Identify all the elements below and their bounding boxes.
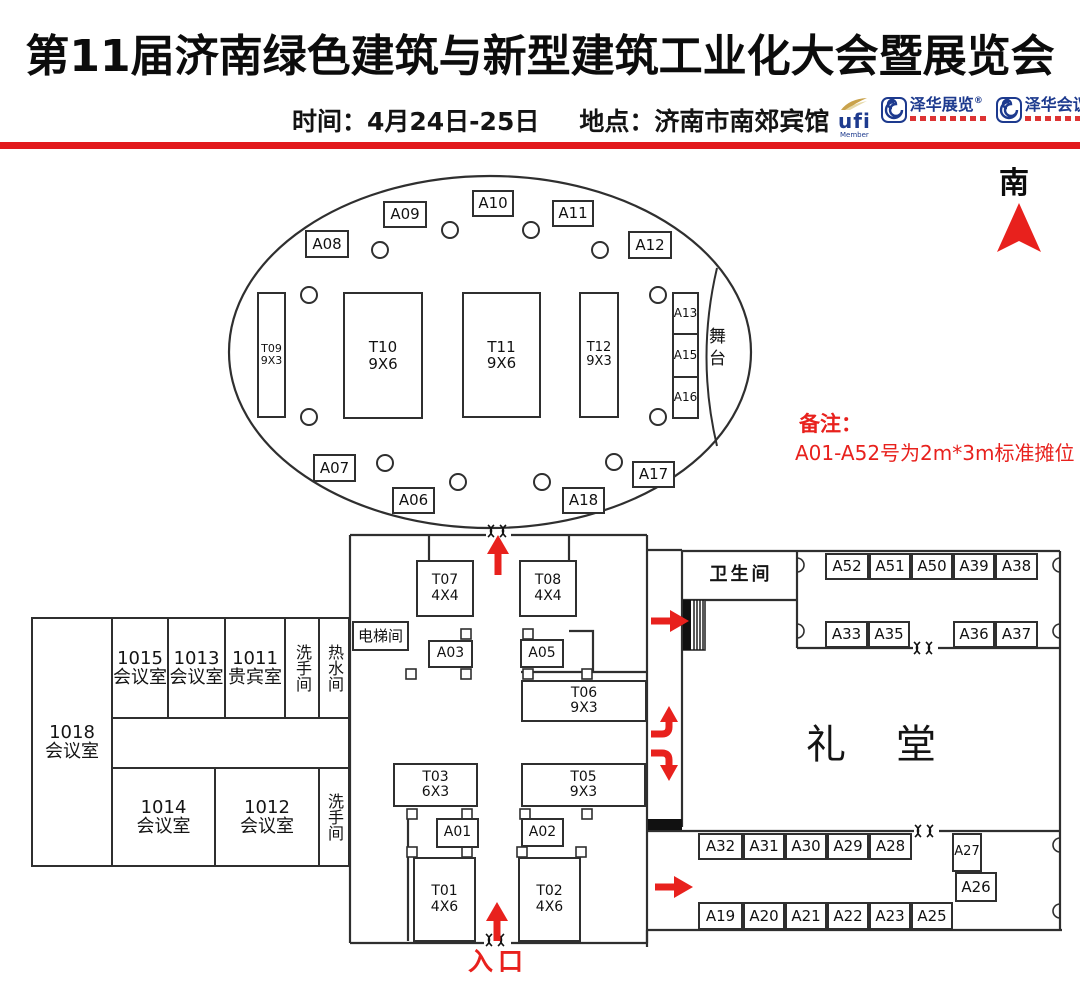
- organizer-logos: ufi Member 泽华展览® 泽华会议®: [838, 97, 1080, 139]
- page-title: 第11届济南绿色建筑与新型建筑工业化大会暨展览会: [0, 20, 1080, 84]
- room-hot-water: 热水间: [320, 619, 348, 717]
- floor-plan-page: 第11届济南绿色建筑与新型建筑工业化大会暨展览会 时间：4月24日-25日 地点…: [0, 0, 1080, 1007]
- booth-A20: A20: [743, 902, 785, 930]
- zehua-swirl-icon: [881, 97, 907, 123]
- ufi-logo: ufi Member: [838, 97, 871, 139]
- room-1018: 1018 会议室: [33, 619, 113, 865]
- booth-A22: A22: [827, 902, 869, 930]
- booth-A18: A18: [562, 487, 605, 514]
- entrance-arrow-icon: [486, 902, 508, 921]
- header-divider-rule: [0, 142, 1080, 149]
- booth-A35: A35: [868, 621, 910, 648]
- booth-T06: T06 9X3: [521, 680, 647, 722]
- booth-A06: A06: [392, 487, 435, 514]
- booth-A29: A29: [827, 833, 869, 860]
- booth-T05: T05 9X3: [521, 763, 646, 807]
- booth-A39: A39: [953, 553, 995, 580]
- booth-A02: A02: [521, 818, 564, 847]
- booth-A12: A12: [628, 231, 672, 259]
- left-wing-top-row: 1015 会议室 1013 会议室 1011 贵宾室 洗手间 热水间: [113, 619, 348, 719]
- room-elevator: 电梯间: [352, 621, 409, 651]
- booth-A27: A27: [952, 833, 982, 872]
- booth-A28: A28: [869, 833, 912, 860]
- booth-A17: A17: [632, 461, 675, 488]
- compass-south-label: 南: [999, 158, 1031, 202]
- booth-T10: T10 9X6: [343, 292, 423, 419]
- booth-T07: T07 4X4: [416, 560, 474, 617]
- zehua-conference-logo: 泽华会议®: [996, 97, 1080, 123]
- ufi-logo-text: ufi: [838, 111, 871, 131]
- turn-down-arrow-icon: [660, 765, 678, 781]
- booth-A38: A38: [995, 553, 1038, 580]
- booth-T03: T03 6X3: [393, 763, 478, 807]
- registered-mark: ®: [974, 96, 983, 106]
- zehua-exhibition-subtext: [910, 116, 986, 121]
- booth-T02: T02 4X6: [518, 857, 581, 942]
- ufi-member-text: Member: [840, 132, 869, 139]
- booth-T11: T11 9X6: [462, 292, 541, 418]
- left-wing-bottom-row: 1014 会议室 1012 会议室 洗手间: [113, 767, 348, 865]
- booth-A05: A05: [520, 639, 564, 668]
- central-hall-walls: [350, 535, 647, 943]
- booth-A33: A33: [825, 621, 868, 648]
- booth-A19: A19: [698, 902, 743, 930]
- zehua-conference-name: 泽华会议®: [1025, 97, 1080, 113]
- booth-A23: A23: [869, 902, 911, 930]
- booth-A15: A15: [672, 333, 699, 378]
- booth-A30: A30: [785, 833, 827, 860]
- left-wing-rooms: 1018 会议室 1015 会议室 1013 会议室 1011 贵宾室 洗手间 …: [31, 617, 350, 867]
- booth-A21: A21: [785, 902, 827, 930]
- turn-up-arrow-icon: [660, 706, 678, 722]
- note-title: 备注：: [799, 408, 862, 438]
- booth-A10: A10: [472, 190, 514, 217]
- booth-A08: A08: [305, 230, 349, 258]
- corridor-right-arrow-icon: [674, 876, 693, 898]
- entrance-label: 入口: [468, 942, 528, 978]
- stairs-icon: [683, 600, 705, 650]
- booth-A36: A36: [953, 621, 995, 648]
- room-washroom-top: 洗手间: [286, 619, 320, 717]
- booth-T01: T01 4X6: [413, 857, 476, 942]
- booth-T12: T12 9X3: [579, 292, 619, 418]
- booth-A03: A03: [428, 640, 473, 668]
- room-1013: 1013 会议室: [169, 619, 226, 717]
- room-1014: 1014 会议室: [113, 769, 216, 865]
- stage-label: 舞台: [703, 327, 728, 371]
- room-1015: 1015 会议室: [113, 619, 169, 717]
- booth-A01: A01: [436, 818, 479, 848]
- booth-A51: A51: [869, 553, 911, 580]
- booth-A13: A13: [672, 292, 699, 335]
- booth-T09: T09 9X3: [257, 292, 286, 418]
- booth-A26: A26: [955, 872, 997, 902]
- event-venue: 地点：济南市南郊宾馆: [579, 102, 829, 138]
- room-auditorium-label: 礼堂: [806, 712, 986, 770]
- zehua-swirl-icon: [996, 97, 1022, 123]
- booth-A25: A25: [911, 902, 953, 930]
- zehua-exhibition-name: 泽华展览®: [910, 97, 986, 113]
- room-washroom-bottom: 洗手间: [320, 769, 348, 865]
- booth-A50: A50: [911, 553, 953, 580]
- booth-A16: A16: [672, 376, 699, 419]
- booth-A07: A07: [313, 454, 356, 482]
- room-1011: 1011 贵宾室: [226, 619, 286, 717]
- booth-A32: A32: [698, 833, 743, 860]
- zehua-conference-subtext: [1025, 116, 1080, 121]
- south-arrow-icon: [997, 203, 1041, 252]
- booth-A11: A11: [552, 200, 594, 227]
- solid-wall-bar: [648, 819, 682, 830]
- booth-A52: A52: [825, 553, 869, 580]
- booth-A09: A09: [383, 201, 427, 228]
- event-time: 时间：4月24日-25日: [292, 102, 539, 138]
- corridor-right-arrow-icon: [670, 610, 689, 632]
- event-info-bar: 时间：4月24日-25日 地点：济南市南郊宾馆: [292, 102, 829, 138]
- booth-A31: A31: [743, 833, 785, 860]
- oval-entry-arrow-icon: [487, 535, 509, 554]
- booth-A37: A37: [995, 621, 1038, 648]
- room-1012: 1012 会议室: [216, 769, 320, 865]
- booth-T08: T08 4X4: [519, 560, 577, 617]
- room-toilet-label: 卫生间: [687, 560, 795, 586]
- note-text: A01-A52号为2m*3m标准摊位: [795, 437, 1074, 466]
- zehua-exhibition-logo: 泽华展览®: [881, 97, 986, 123]
